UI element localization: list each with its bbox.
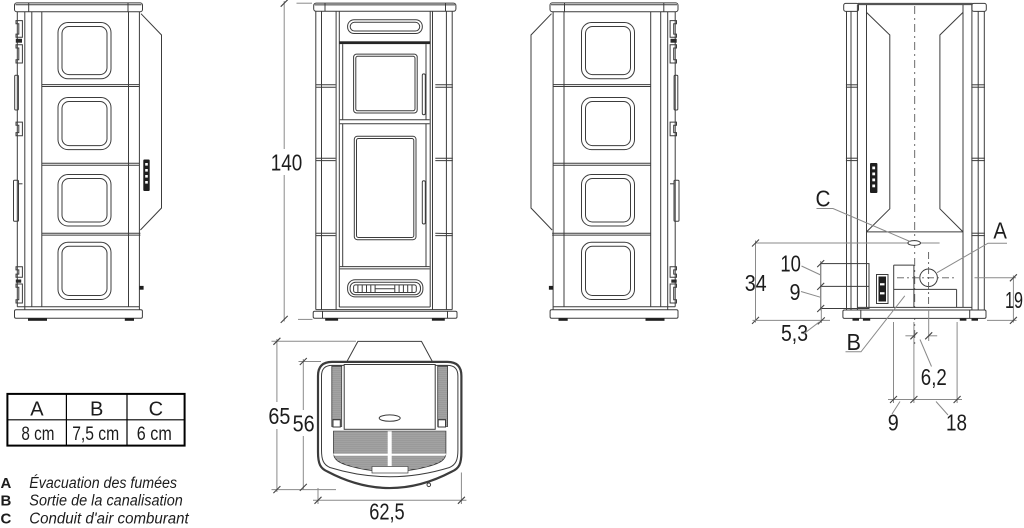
svg-text:B: B <box>1 493 12 510</box>
svg-text:A: A <box>30 398 44 420</box>
svg-text:34: 34 <box>745 270 767 296</box>
svg-text:7,5 cm: 7,5 cm <box>72 424 119 445</box>
svg-text:9: 9 <box>790 279 801 305</box>
svg-text:6,2: 6,2 <box>921 364 947 390</box>
svg-text:19: 19 <box>1005 287 1023 313</box>
svg-text:Conduit d'air comburant: Conduit d'air comburant <box>29 510 189 527</box>
svg-text:8 cm: 8 cm <box>21 424 54 445</box>
svg-text:10: 10 <box>780 251 801 277</box>
svg-text:B: B <box>90 398 103 420</box>
svg-text:18: 18 <box>946 410 967 436</box>
svg-text:140: 140 <box>271 150 303 176</box>
svg-text:A: A <box>1 475 12 492</box>
svg-text:C: C <box>149 398 163 420</box>
svg-text:C: C <box>1 510 12 527</box>
svg-text:Évacuation des fumées: Évacuation des fumées <box>29 475 177 492</box>
svg-text:A: A <box>993 218 1007 244</box>
svg-text:5,3: 5,3 <box>781 320 808 346</box>
svg-text:65: 65 <box>268 403 290 429</box>
svg-text:B: B <box>847 329 862 355</box>
svg-text:56: 56 <box>293 411 315 437</box>
svg-text:Sortie de la canalisation: Sortie de la canalisation <box>29 493 183 510</box>
svg-text:9: 9 <box>888 410 899 436</box>
svg-text:C: C <box>816 186 831 212</box>
svg-text:6 cm: 6 cm <box>137 424 172 445</box>
svg-text:62,5: 62,5 <box>369 499 405 525</box>
